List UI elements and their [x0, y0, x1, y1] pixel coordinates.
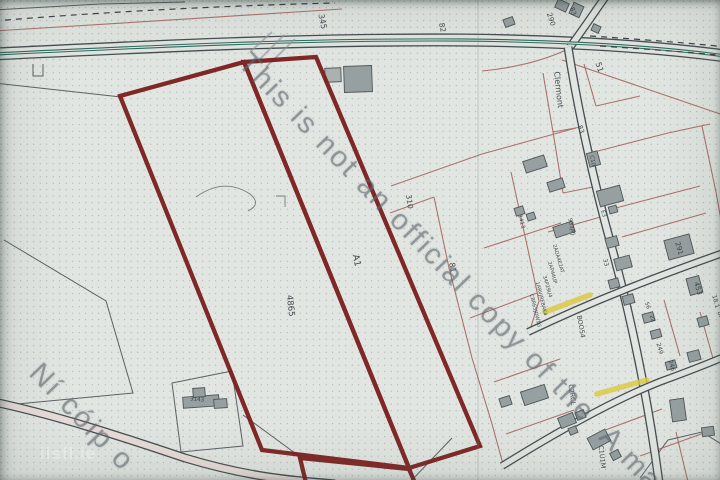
building — [344, 66, 373, 93]
cadastral-map-view: 345822908351Clermont83C10E331081A1486531… — [0, 0, 720, 480]
building — [701, 426, 714, 437]
building — [608, 205, 618, 214]
map-label: 81 — [447, 262, 458, 274]
building — [214, 399, 228, 409]
map-canvas: 345822908351Clermont83C10E331081A1486531… — [0, 0, 720, 480]
building — [697, 316, 709, 327]
map-label: 3143 — [190, 396, 205, 403]
building — [670, 398, 687, 422]
building — [608, 278, 620, 289]
